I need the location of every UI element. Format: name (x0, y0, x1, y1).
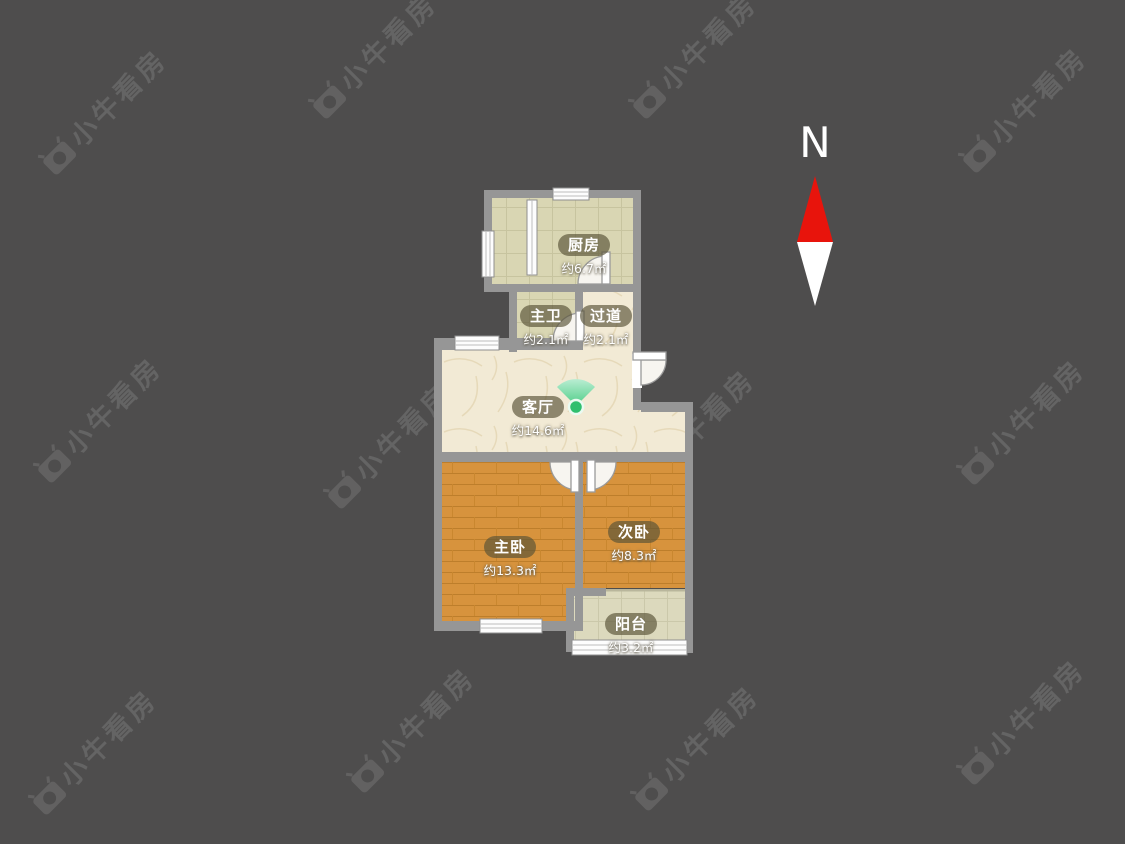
floor-living (442, 350, 641, 455)
compass-north-label: N (799, 120, 830, 166)
window-balcony-bottom (572, 640, 687, 655)
window-kitchen-left (482, 231, 494, 277)
floorplan-canvas: 小牛看房小牛看房小牛看房小牛看房小牛看房小牛看房小牛看房小牛看房小牛看房小牛看房… (0, 0, 1125, 844)
window-kitchen-top (553, 188, 589, 200)
floor-balcony (574, 590, 685, 643)
floors-group (442, 198, 685, 643)
window-master-bottom (480, 619, 542, 633)
floor-kitchen (492, 198, 633, 284)
compass-arrow-icon (796, 172, 834, 309)
window-kitchen-partition (527, 200, 537, 275)
door-entry (632, 352, 666, 388)
floor-hallway (583, 292, 633, 354)
compass: N (780, 120, 850, 330)
floor-master (442, 462, 575, 621)
floorplan-drawing (0, 0, 1125, 844)
window-living-top (455, 336, 499, 350)
